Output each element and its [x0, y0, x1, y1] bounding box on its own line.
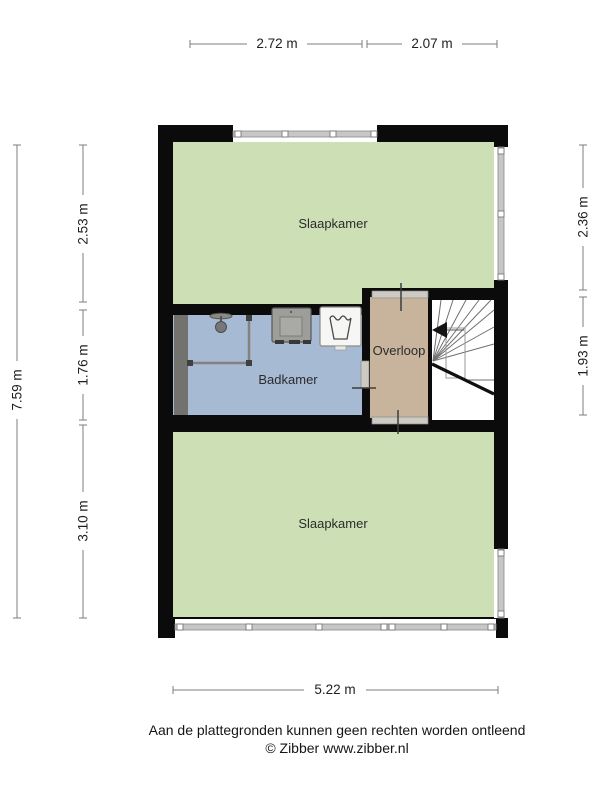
- door-opening: [372, 291, 428, 298]
- room-label-badkamer: Badkamer: [258, 372, 318, 387]
- footer: Aan de plattegronden kunnen geen rechten…: [149, 722, 526, 756]
- window-mullion: [235, 131, 241, 137]
- shower-screen-node: [246, 315, 252, 321]
- door-opening: [361, 361, 369, 388]
- window-mullion: [441, 624, 447, 630]
- footer-credit: © Zibber www.zibber.nl: [265, 740, 408, 756]
- sink-tap: [290, 311, 292, 313]
- vanity-foot: [289, 340, 300, 344]
- dim-label: 2.53 m: [76, 203, 91, 244]
- dimension-left-bottom: 3.10 m: [75, 425, 91, 618]
- footer-disclaimer: Aan de plattegronden kunnen geen rechten…: [149, 722, 526, 738]
- room-label-slaapkamer-top: Slaapkamer: [298, 216, 368, 231]
- dimension-top-left: 2.72 m: [190, 36, 362, 51]
- dim-label: 2.72 m: [256, 36, 297, 51]
- dim-label: 3.10 m: [76, 500, 91, 541]
- window-right-upper: [494, 147, 508, 280]
- dim-label: 7.59 m: [10, 369, 25, 410]
- room-slaapkamer-top: [173, 142, 494, 288]
- window-mullion: [498, 148, 504, 154]
- basket-tab: [335, 346, 346, 350]
- window-mullion: [381, 624, 387, 630]
- window-mullion: [498, 550, 504, 556]
- basket-tile: [320, 307, 361, 346]
- window-mullion: [498, 211, 504, 217]
- dim-label: 2.07 m: [411, 36, 452, 51]
- window-mullion: [389, 624, 395, 630]
- window-glass-band: [233, 131, 377, 137]
- dim-label: 5.22 m: [314, 682, 355, 697]
- dimension-left-top: 2.53 m: [75, 145, 91, 302]
- shower-head: [216, 322, 227, 333]
- bottom-edge-gap: [175, 635, 496, 638]
- bathroom-wall-strip: [174, 315, 188, 415]
- floor-plan: Slaapkamer Badkamer Overloop Slaapkamer: [158, 125, 508, 638]
- dim-label: 1.93 m: [576, 335, 591, 376]
- floor-plan-canvas: Slaapkamer Badkamer Overloop Slaapkamer …: [0, 0, 600, 800]
- shower-screen-node: [187, 360, 193, 366]
- window-mullion: [488, 624, 494, 630]
- window-right-lower: [494, 549, 508, 618]
- window-glass-band: [498, 549, 504, 618]
- vanity-foot: [275, 340, 284, 344]
- window-mullion: [316, 624, 322, 630]
- dimension-right-bottom: 1.93 m: [575, 297, 591, 415]
- window-mullion: [246, 624, 252, 630]
- window-mullion: [498, 611, 504, 617]
- dimension-left-outer: 7.59 m: [9, 145, 25, 618]
- window-glass-band: [175, 624, 496, 630]
- window-bottom: [175, 619, 496, 635]
- window-top: [233, 125, 377, 142]
- window-mullion: [498, 274, 504, 280]
- window-mullion: [282, 131, 288, 137]
- laundry-basket-icon: [320, 307, 361, 350]
- door-opening: [372, 417, 428, 424]
- room-label-slaapkamer-bottom: Slaapkamer: [298, 516, 368, 531]
- window-mullion: [330, 131, 336, 137]
- dim-label: 1.76 m: [76, 344, 91, 385]
- dimension-top-right: 2.07 m: [367, 36, 497, 51]
- dimension-bottom: 5.22 m: [173, 682, 498, 697]
- room-label-overloop: Overloop: [373, 343, 426, 358]
- window-mullion: [371, 131, 377, 137]
- dimension-left-middle: 1.76 m: [75, 310, 91, 420]
- room-slaapkamer-top-extension: [173, 288, 362, 304]
- shower-screen-node: [246, 360, 252, 366]
- dimension-right-top: 2.36 m: [575, 145, 591, 290]
- sink-vanity-icon: [272, 308, 311, 344]
- dim-label: 2.36 m: [576, 196, 591, 237]
- window-mullion: [177, 624, 183, 630]
- vanity-foot: [303, 340, 311, 344]
- floor-plan-page: Slaapkamer Badkamer Overloop Slaapkamer …: [0, 0, 600, 800]
- sink-bowl: [280, 317, 302, 336]
